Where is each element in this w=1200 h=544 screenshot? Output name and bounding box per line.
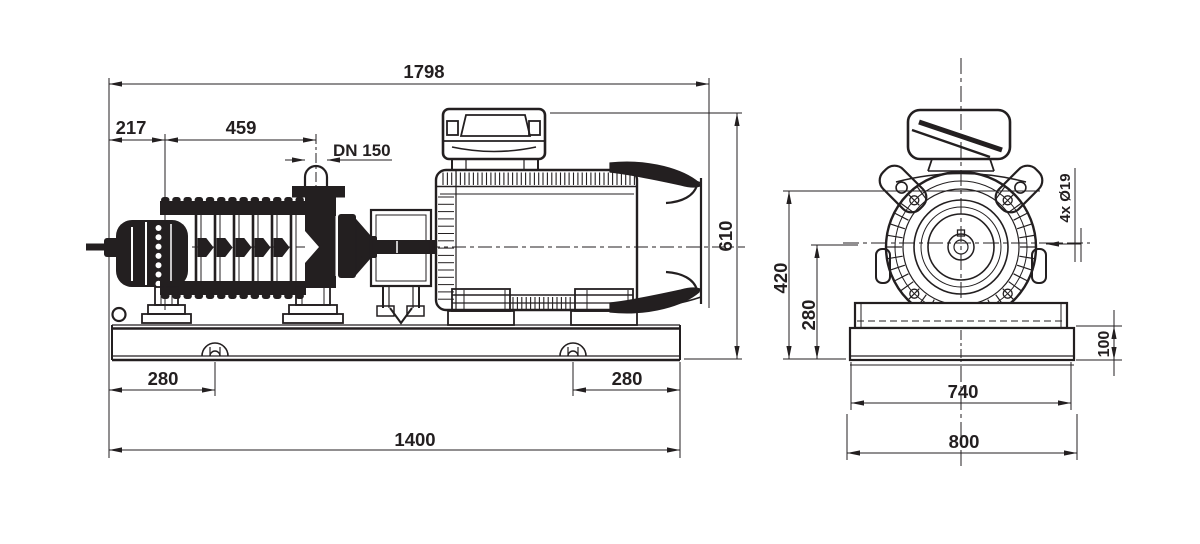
svg-text:1798: 1798 <box>403 61 444 82</box>
svg-text:1400: 1400 <box>394 429 435 450</box>
svg-text:420: 420 <box>770 263 791 294</box>
svg-text:800: 800 <box>949 431 980 452</box>
svg-text:280: 280 <box>612 368 643 389</box>
svg-text:DN 150: DN 150 <box>333 141 391 160</box>
svg-text:100: 100 <box>1096 331 1113 358</box>
svg-text:4x Ø19: 4x Ø19 <box>1057 173 1074 222</box>
svg-text:280: 280 <box>148 368 179 389</box>
svg-text:610: 610 <box>715 221 736 252</box>
svg-text:740: 740 <box>948 381 979 402</box>
svg-text:217: 217 <box>116 117 147 138</box>
svg-text:459: 459 <box>226 117 257 138</box>
svg-text:280: 280 <box>798 300 819 331</box>
